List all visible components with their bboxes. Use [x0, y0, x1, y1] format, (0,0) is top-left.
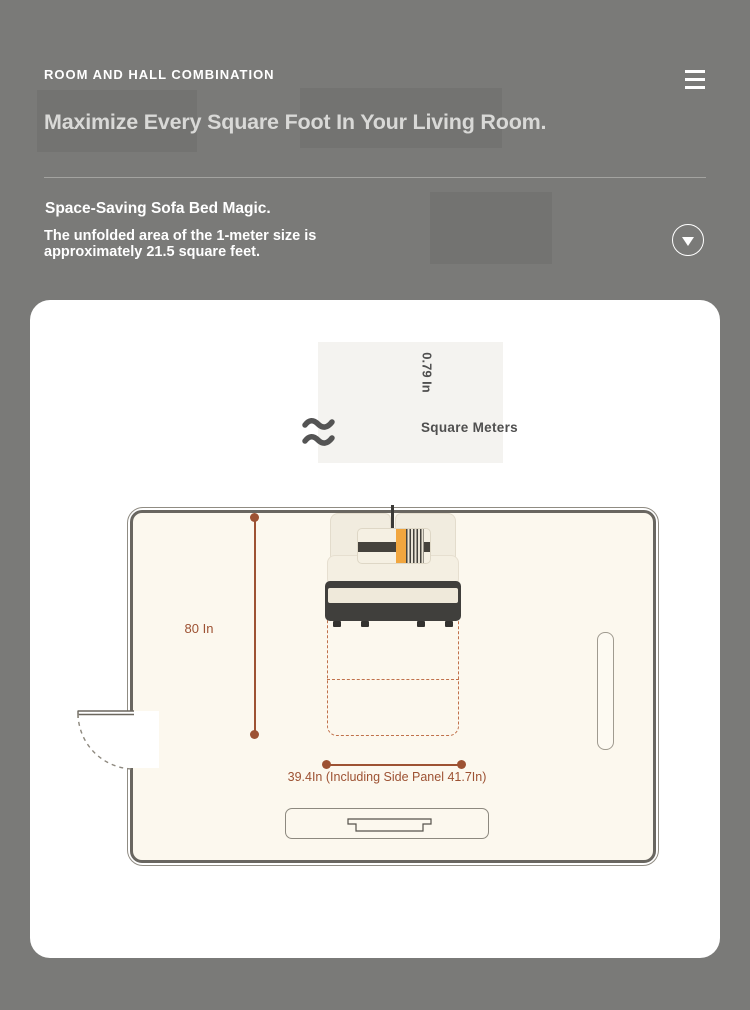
section-divider — [44, 177, 706, 178]
tv-icon — [286, 809, 490, 840]
skeleton-block — [430, 192, 552, 264]
floorplan-card: 0.79 In Square Meters 80 In 39.4In (Incl — [30, 300, 720, 958]
sofa-bed — [325, 505, 461, 631]
height-dimension-line — [254, 518, 256, 735]
brand-title: ROOM AND HALL COMBINATION — [44, 67, 275, 82]
chevron-down-icon — [682, 237, 694, 246]
unfolded-area-divider — [327, 679, 459, 680]
unfolded-area-outline — [327, 618, 459, 736]
side-table — [597, 632, 614, 750]
approx-squiggle-icon — [300, 412, 340, 452]
expand-section-button[interactable] — [672, 224, 704, 256]
feature-description: The unfolded area of the 1-meter size is… — [44, 229, 364, 260]
depth-dimension-label: 0.79 In — [420, 313, 435, 433]
height-dimension-label: 80 In — [169, 621, 229, 636]
unit-label: Square Meters — [421, 420, 518, 435]
image-placeholder — [318, 342, 503, 463]
width-dimension-line — [326, 764, 462, 766]
tv-stand — [285, 808, 489, 839]
feature-title: Space-Saving Sofa Bed Magic. — [45, 200, 271, 218]
bed-base — [325, 581, 461, 621]
door-icon — [58, 698, 168, 798]
bed-pillow — [357, 528, 431, 564]
width-dimension-label: 39.4In (Including Side Panel 41.7In) — [267, 770, 507, 784]
page-title: Maximize Every Square Foot In Your Livin… — [44, 110, 684, 135]
bed-seam — [391, 505, 394, 529]
hamburger-icon[interactable] — [683, 68, 707, 92]
